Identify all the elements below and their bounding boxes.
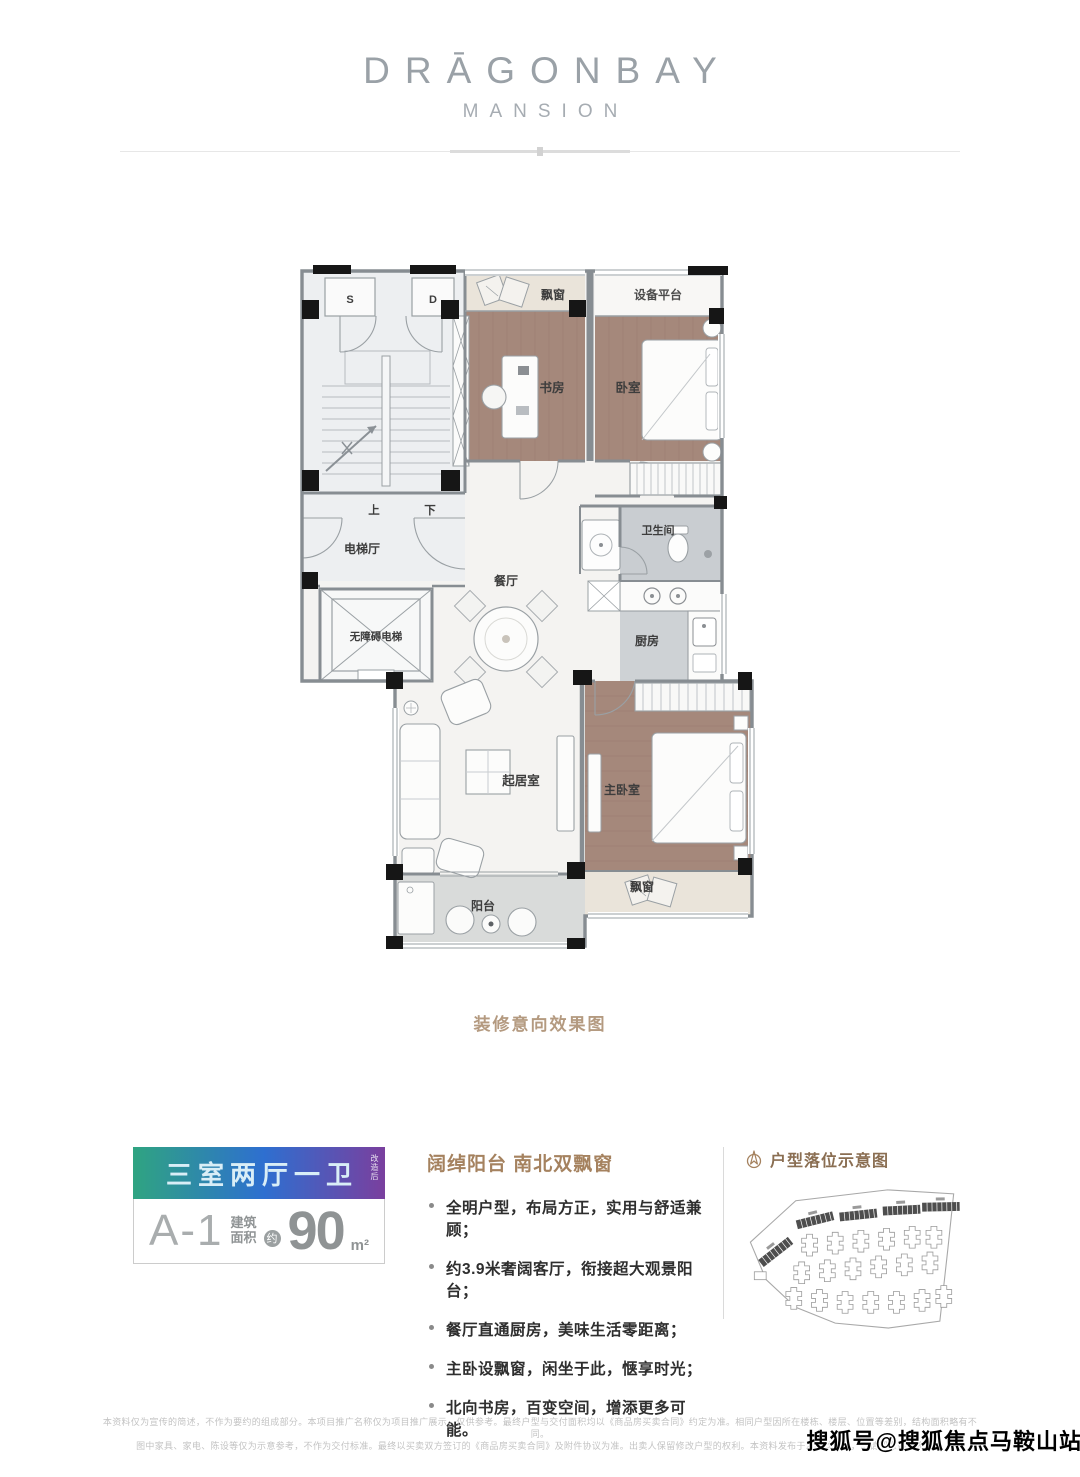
brand-logo: DRĀGONBAY MANSION <box>0 0 1080 123</box>
room-label-bay-window-top: 飘窗 <box>541 287 565 302</box>
info-section: 三室两厅一卫 改造后 A-1 建筑 面积 约 90 m² 阔绰阳台 南北双飘窗 … <box>0 1147 1080 1457</box>
bullet-icon <box>429 1325 434 1330</box>
layout-tag-note: 改造后 <box>369 1154 380 1181</box>
room-label-balcony: 阳台 <box>471 898 495 913</box>
layout-tag-bar: 三室两厅一卫 改造后 <box>133 1147 385 1199</box>
page: DRĀGONBAY MANSION <box>0 0 1080 1477</box>
floorplan-drawing: S D 上 下 电梯厅 无障碍电梯 飘窗 设备平台 书房 卧室 餐厅 卫生间 厨… <box>290 256 790 966</box>
room-label-up: 上 <box>368 503 380 517</box>
feature-item: 餐厅直通厨房，美味生活零距离； <box>427 1318 715 1340</box>
area-unit: m² <box>351 1237 369 1254</box>
ornament-divider <box>120 147 960 156</box>
bullet-icon <box>429 1203 434 1208</box>
floorplan: S D 上 下 电梯厅 无障碍电梯 飘窗 设备平台 书房 卧室 餐厅 卫生间 厨… <box>0 256 1080 966</box>
unit-badge: 三室两厅一卫 改造后 A-1 建筑 面积 约 90 m² <box>133 1147 385 1264</box>
room-label-bay-window-bottom: 飘窗 <box>630 879 654 894</box>
room-label-bathroom: 卫生间 <box>642 523 675 537</box>
room-label-bedroom: 卧室 <box>615 380 641 395</box>
unit-code: A-1 <box>149 1206 223 1256</box>
room-label-master-bedroom: 主卧室 <box>604 782 640 797</box>
area-approx-badge: 约 <box>264 1230 281 1247</box>
watermark: 搜狐号@搜狐焦点马鞍山站 <box>807 1424 1080 1456</box>
brand-subtitle: MANSION <box>0 101 1080 123</box>
room-label-dining: 餐厅 <box>494 573 518 588</box>
feature-item: 全明户型，布局方正，实用与舒适兼顾； <box>427 1196 715 1240</box>
feature-item: 主卧设飘窗，闲坐于此，惬享时光； <box>427 1357 715 1379</box>
plan-caption: 装修意向效果图 <box>0 1010 1080 1035</box>
bullet-icon <box>429 1264 434 1269</box>
bullet-icon <box>429 1403 434 1408</box>
room-label-accessible-elevator: 无障碍电梯 <box>349 630 403 643</box>
room-label-stair-s: S <box>346 294 353 306</box>
features-heading: 阔绰阳台 南北双飘窗 <box>427 1149 715 1176</box>
features-block: 阔绰阳台 南北双飘窗 全明户型，布局方正，实用与舒适兼顾； 约3.9米奢阔客厅，… <box>385 1147 715 1457</box>
vertical-divider <box>723 1147 724 1319</box>
siteplan-map <box>744 1181 962 1331</box>
room-label-kitchen: 厨房 <box>635 633 659 648</box>
bullet-icon <box>429 1364 434 1369</box>
divider-knob-icon <box>537 147 543 156</box>
area-value: 90 <box>288 1200 344 1262</box>
room-label-stair-d: D <box>429 294 437 306</box>
room-label-equipment-platform: 设备平台 <box>634 287 682 302</box>
siteplan-heading-row: 户型落位示意图 <box>744 1147 962 1171</box>
room-label-living-room: 起居室 <box>501 773 540 788</box>
unit-area-box: A-1 建筑 面积 约 90 m² <box>133 1199 385 1264</box>
room-label-elevator-hall: 电梯厅 <box>344 541 380 556</box>
area-label: 建筑 面积 <box>231 1216 257 1246</box>
layout-tag: 三室两厅一卫 <box>160 1155 358 1192</box>
compass-icon <box>744 1149 764 1169</box>
brand-name: DRĀGONBAY <box>0 50 1080 92</box>
features-list: 全明户型，布局方正，实用与舒适兼顾； 约3.9米奢阔客厅，衔接超大观景阳台； 餐… <box>427 1196 715 1440</box>
room-label-down: 下 <box>424 504 436 517</box>
siteplan-block: 户型落位示意图 <box>744 1147 962 1336</box>
room-label-study: 书房 <box>539 380 564 395</box>
siteplan-heading: 户型落位示意图 <box>770 1147 889 1171</box>
feature-item: 约3.9米奢阔客厅，衔接超大观景阳台； <box>427 1257 715 1301</box>
